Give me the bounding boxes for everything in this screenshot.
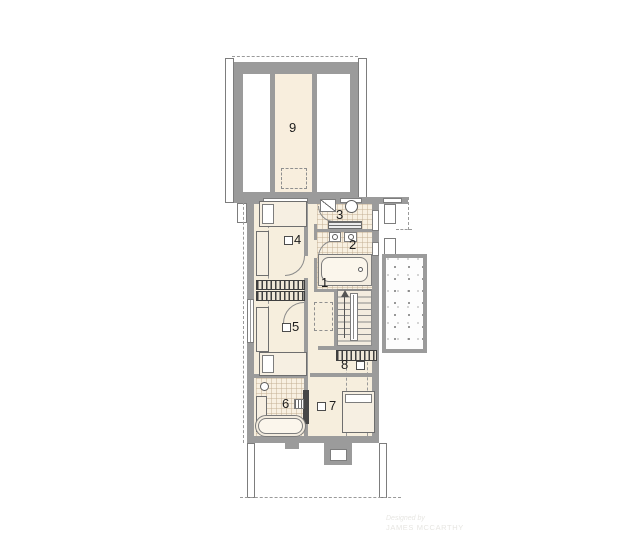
furniture-marker-room5 xyxy=(282,323,291,332)
balcony-concrete xyxy=(382,254,427,353)
window-right-2 xyxy=(372,242,379,256)
partition-room56-hall xyxy=(304,302,308,390)
bed-room7-pillow xyxy=(345,394,372,403)
room-label-2: 2 xyxy=(349,238,356,251)
window-top-3 xyxy=(383,198,402,203)
guide-line-left-overhang xyxy=(243,197,244,443)
bathtub-room6-basin xyxy=(258,418,303,434)
niche-room6 xyxy=(294,399,304,409)
chimney-flue xyxy=(330,449,347,461)
void-dashed-room1 xyxy=(314,302,333,331)
stair-rail xyxy=(350,293,358,341)
desk-room4 xyxy=(256,231,269,276)
furniture-marker-room8 xyxy=(356,361,365,370)
post-left xyxy=(237,203,247,223)
terrace-bay-left xyxy=(243,74,270,192)
roof-wall-right xyxy=(379,443,387,498)
partition-room8-room7 xyxy=(310,373,379,377)
desk-room5 xyxy=(256,307,269,352)
designed-by-watermark: Designed by JAMES MCCARTHY xyxy=(386,514,464,534)
post-right-1 xyxy=(384,204,396,224)
stair-rail-line xyxy=(353,295,354,339)
roof-wall-left xyxy=(247,443,255,498)
terrace-pillar-right xyxy=(358,58,367,203)
stair-arrow-line xyxy=(344,296,345,338)
floor-plan-canvas: 9 4 xyxy=(0,0,638,556)
wardrobe-hall-lower xyxy=(256,291,305,301)
guide-line-right-overhang xyxy=(408,197,409,230)
room-label-3: 3 xyxy=(336,208,343,221)
bathtub-room2-drain xyxy=(358,267,363,272)
room-label-6: 6 xyxy=(282,397,289,410)
radiator-room3 xyxy=(328,221,362,229)
room-label-9: 9 xyxy=(289,121,296,134)
terrace-bay-right xyxy=(317,74,350,192)
roof-notch xyxy=(285,443,299,449)
room-label-8: 8 xyxy=(341,358,348,371)
partition-room3-room2 xyxy=(314,229,372,232)
window-right-1 xyxy=(372,210,379,231)
terrace-dashed-edge xyxy=(232,56,358,57)
partition-bath-left-a xyxy=(314,224,317,240)
terrace-skylight-dashed xyxy=(281,168,307,189)
sink-icon-1-basin xyxy=(332,234,338,240)
room-label-5: 5 xyxy=(292,320,299,333)
room-label-4: 4 xyxy=(294,233,301,246)
up-arrow-icon xyxy=(341,290,349,297)
roof-edge-dashed xyxy=(240,497,401,498)
furniture-marker-room4 xyxy=(284,236,293,245)
room-label-1: 1 xyxy=(321,276,328,289)
bed-room5-pillow xyxy=(262,355,274,373)
watermark-line2: JAMES MCCARTHY xyxy=(386,523,464,533)
furniture-marker-room7 xyxy=(317,402,326,411)
window-left-pane-line xyxy=(250,300,251,342)
washer-icon xyxy=(320,199,336,212)
bed-room4-pillow xyxy=(262,204,274,224)
partition-bath-left-b xyxy=(314,258,317,292)
guide-line-right-h xyxy=(396,229,412,230)
wardrobe-hall-upper xyxy=(256,280,305,290)
room-label-7: 7 xyxy=(329,399,336,412)
wall-bottom xyxy=(247,436,379,443)
toilet-icon xyxy=(260,382,269,391)
watermark-line1: Designed by xyxy=(386,514,464,523)
boiler-icon xyxy=(345,200,358,213)
terrace-pillar-left xyxy=(225,58,234,203)
